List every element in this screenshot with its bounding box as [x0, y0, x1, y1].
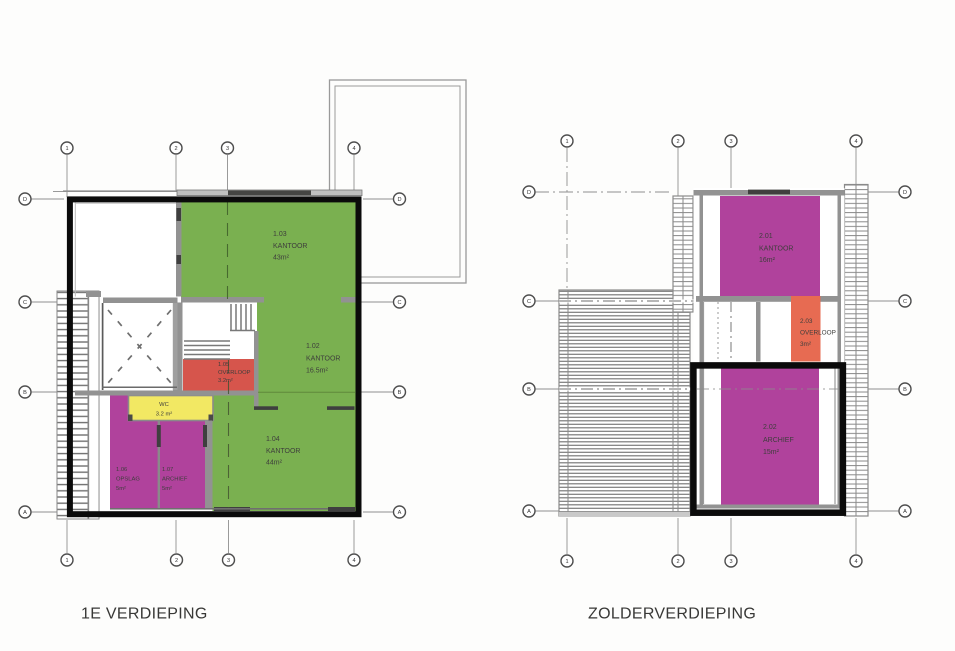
svg-text:D: D [527, 190, 531, 196]
svg-text:ARCHIEF: ARCHIEF [763, 437, 794, 444]
svg-text:4: 4 [854, 559, 857, 565]
svg-text:C: C [23, 300, 27, 306]
svg-text:3.2m²: 3.2m² [218, 378, 233, 384]
svg-text:1.04: 1.04 [266, 436, 280, 443]
svg-text:2.02: 2.02 [763, 424, 777, 431]
svg-text:KANTOOR: KANTOOR [306, 356, 341, 363]
svg-text:2.03: 2.03 [800, 318, 813, 325]
svg-text:16m²: 16m² [759, 257, 776, 264]
svg-text:4: 4 [352, 558, 355, 564]
svg-text:D: D [23, 197, 27, 203]
svg-text:1: 1 [65, 558, 68, 564]
svg-text:B: B [527, 387, 531, 393]
svg-text:2: 2 [676, 139, 679, 145]
svg-text:1: 1 [565, 559, 568, 565]
svg-text:5m²: 5m² [162, 486, 172, 492]
svg-text:44m²: 44m² [266, 460, 283, 467]
svg-text:2: 2 [175, 558, 178, 564]
svg-text:1.05: 1.05 [218, 362, 229, 368]
svg-text:4: 4 [352, 146, 355, 152]
svg-text:16.5m²: 16.5m² [306, 368, 328, 375]
svg-text:4: 4 [854, 139, 857, 145]
svg-text:B: B [23, 390, 27, 396]
svg-text:KANTOOR: KANTOOR [273, 243, 308, 250]
svg-text:5m²: 5m² [116, 486, 126, 492]
svg-text:A: A [398, 510, 402, 516]
svg-text:3m²: 3m² [800, 341, 811, 348]
svg-text:OVERLOOP: OVERLOOP [800, 330, 836, 337]
svg-text:3: 3 [226, 146, 229, 152]
svg-text:3: 3 [729, 559, 732, 565]
svg-text:2: 2 [174, 146, 177, 152]
svg-text:1.07: 1.07 [162, 467, 173, 473]
svg-text:1.06: 1.06 [116, 467, 127, 473]
svg-text:1: 1 [565, 139, 568, 145]
svg-text:A: A [903, 509, 907, 515]
svg-text:2: 2 [676, 559, 679, 565]
svg-text:3: 3 [227, 558, 230, 564]
svg-text:2.01: 2.01 [759, 233, 773, 240]
svg-text:D: D [397, 197, 401, 203]
svg-text:KANTOOR: KANTOOR [759, 246, 794, 253]
svg-text:15m²: 15m² [763, 449, 780, 456]
svg-text:1.03: 1.03 [273, 231, 287, 238]
svg-text:A: A [527, 509, 531, 515]
svg-text:ZOLDERVERDIEPING: ZOLDERVERDIEPING [588, 606, 756, 623]
svg-text:OVERLOOP: OVERLOOP [218, 370, 251, 376]
svg-text:B: B [398, 390, 402, 396]
svg-text:1.02: 1.02 [306, 343, 320, 350]
svg-text:3: 3 [729, 139, 732, 145]
svg-text:A: A [23, 510, 27, 516]
svg-text:OPSLAG: OPSLAG [116, 477, 140, 483]
svg-text:C: C [397, 300, 401, 306]
svg-text:KANTOOR: KANTOOR [266, 448, 301, 455]
svg-text:1: 1 [65, 146, 68, 152]
svg-text:WC: WC [159, 402, 169, 408]
svg-text:ARCHIEF: ARCHIEF [162, 477, 188, 483]
svg-text:3.2 m²: 3.2 m² [156, 412, 172, 418]
svg-text:C: C [903, 299, 907, 305]
svg-text:D: D [903, 190, 907, 196]
svg-text:C: C [527, 299, 531, 305]
svg-text:B: B [903, 387, 907, 393]
svg-text:1E VERDIEPING: 1E VERDIEPING [81, 606, 208, 623]
svg-text:43m²: 43m² [273, 255, 290, 262]
